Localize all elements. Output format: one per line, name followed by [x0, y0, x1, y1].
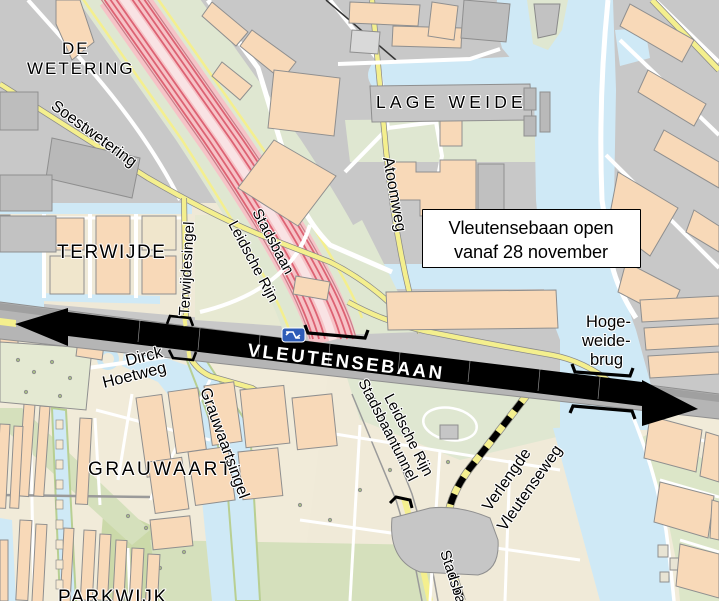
svg-text:Hoge-: Hoge- — [586, 313, 631, 331]
svg-text:weide-: weide- — [581, 332, 631, 350]
svg-text:PARKWIJK: PARKWIJK — [58, 587, 168, 601]
svg-text:WETERING: WETERING — [27, 59, 135, 78]
svg-text:vanaf 28 november: vanaf 28 november — [454, 242, 608, 262]
svg-text:GRAUWAART: GRAUWAART — [88, 459, 234, 480]
svg-text:Vleutensebaan open: Vleutensebaan open — [448, 218, 613, 238]
svg-text:LAGE WEIDE: LAGE WEIDE — [376, 92, 527, 112]
svg-text:brug: brug — [590, 351, 623, 369]
svg-text:TERWIJDE: TERWIJDE — [57, 242, 167, 263]
svg-text:DE: DE — [62, 39, 90, 58]
